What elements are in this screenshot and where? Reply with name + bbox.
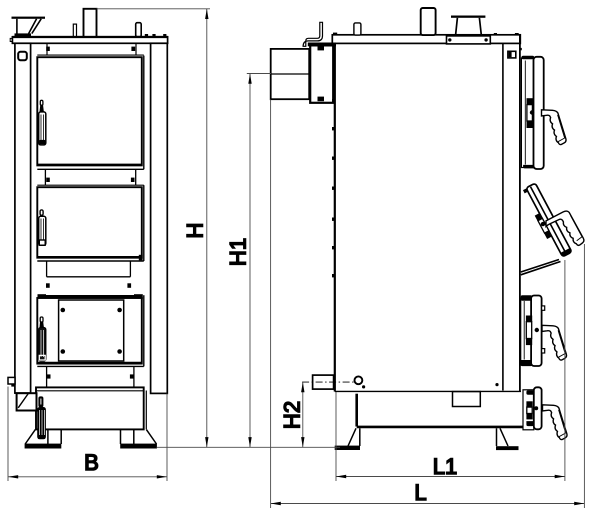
svg-text:H1: H1 [226,238,251,266]
svg-text:H: H [183,223,208,239]
svg-text:L: L [414,480,426,505]
svg-text:B: B [84,450,99,475]
svg-text:H2: H2 [280,401,305,429]
svg-text:L1: L1 [433,454,457,479]
